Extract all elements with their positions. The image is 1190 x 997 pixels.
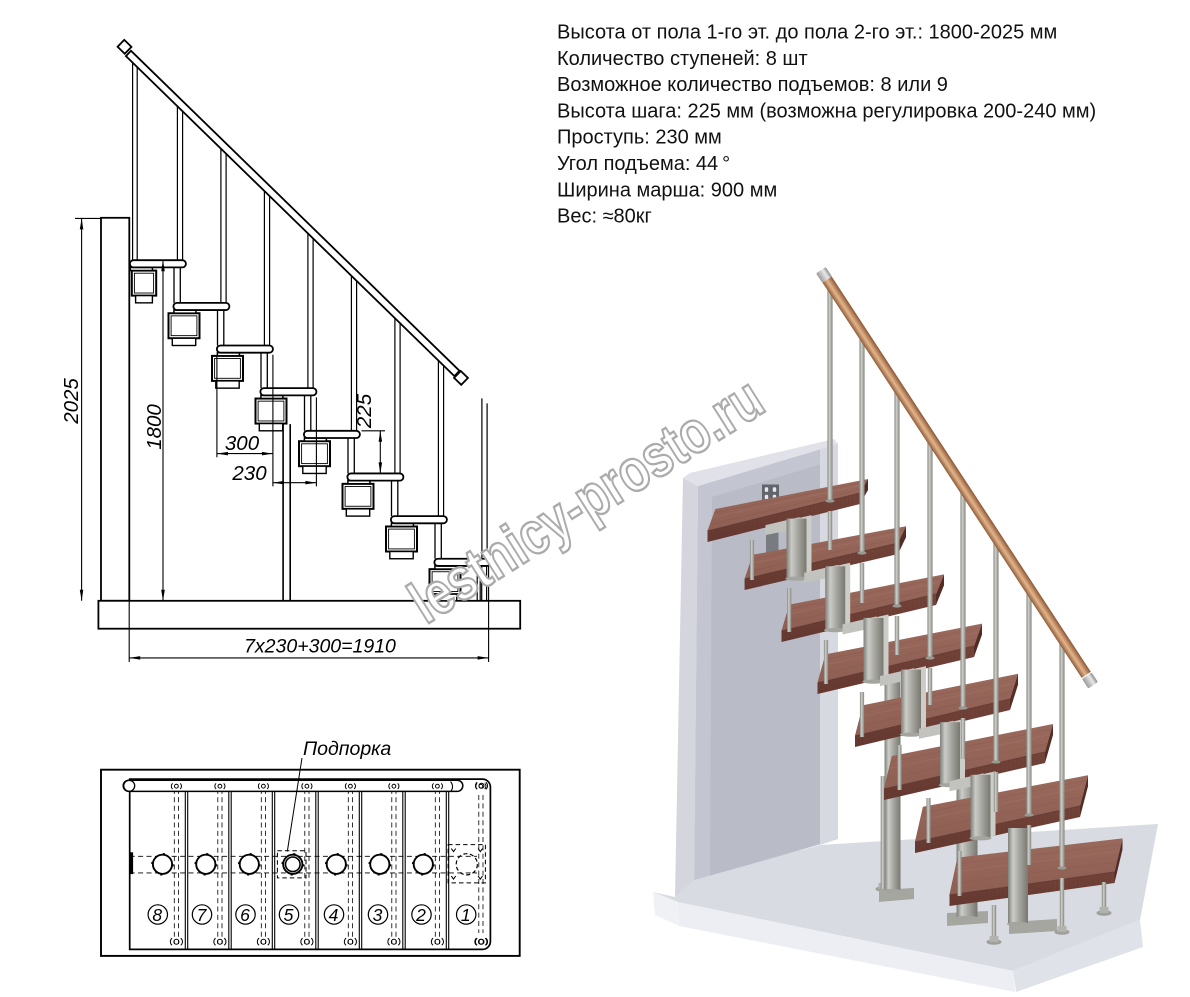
svg-text:Угол подъема: 44 °: Угол подъема: 44 ° bbox=[557, 153, 730, 175]
svg-text:8: 8 bbox=[152, 905, 162, 925]
svg-text:225: 225 bbox=[353, 393, 376, 429]
svg-text:Подпорка: Подпорка bbox=[303, 738, 391, 760]
svg-text:4: 4 bbox=[329, 905, 339, 925]
svg-text:1800: 1800 bbox=[143, 404, 166, 450]
svg-text:5: 5 bbox=[284, 905, 294, 925]
svg-text:Проступь: 230 мм: Проступь: 230 мм bbox=[557, 127, 722, 149]
svg-text:7x230+300=1910: 7x230+300=1910 bbox=[244, 636, 396, 658]
svg-text:230: 230 bbox=[231, 462, 267, 485]
svg-text:300: 300 bbox=[225, 432, 260, 455]
svg-text:Количество ступеней: 8 шт: Количество ступеней: 8 шт bbox=[557, 48, 808, 70]
svg-text:Высота шага: 225 мм (возможна: Высота шага: 225 мм (возможна регулировк… bbox=[557, 100, 1096, 122]
svg-text:1: 1 bbox=[461, 905, 471, 925]
svg-text:Ширина марша: 900 мм: Ширина марша: 900 мм bbox=[557, 179, 777, 201]
svg-text:Вес: ≈80кг: Вес: ≈80кг bbox=[557, 206, 652, 228]
svg-text:Высота от пола 1-го эт. до пол: Высота от пола 1-го эт. до пола 2-го эт.… bbox=[557, 22, 1057, 44]
svg-text:6: 6 bbox=[240, 905, 250, 925]
svg-text:Возможное количество подъемов:: Возможное количество подъемов: 8 или 9 bbox=[557, 74, 948, 96]
svg-text:2: 2 bbox=[415, 905, 426, 925]
svg-text:2025: 2025 bbox=[60, 378, 83, 425]
svg-text:7: 7 bbox=[197, 905, 208, 925]
svg-text:3: 3 bbox=[373, 905, 383, 925]
